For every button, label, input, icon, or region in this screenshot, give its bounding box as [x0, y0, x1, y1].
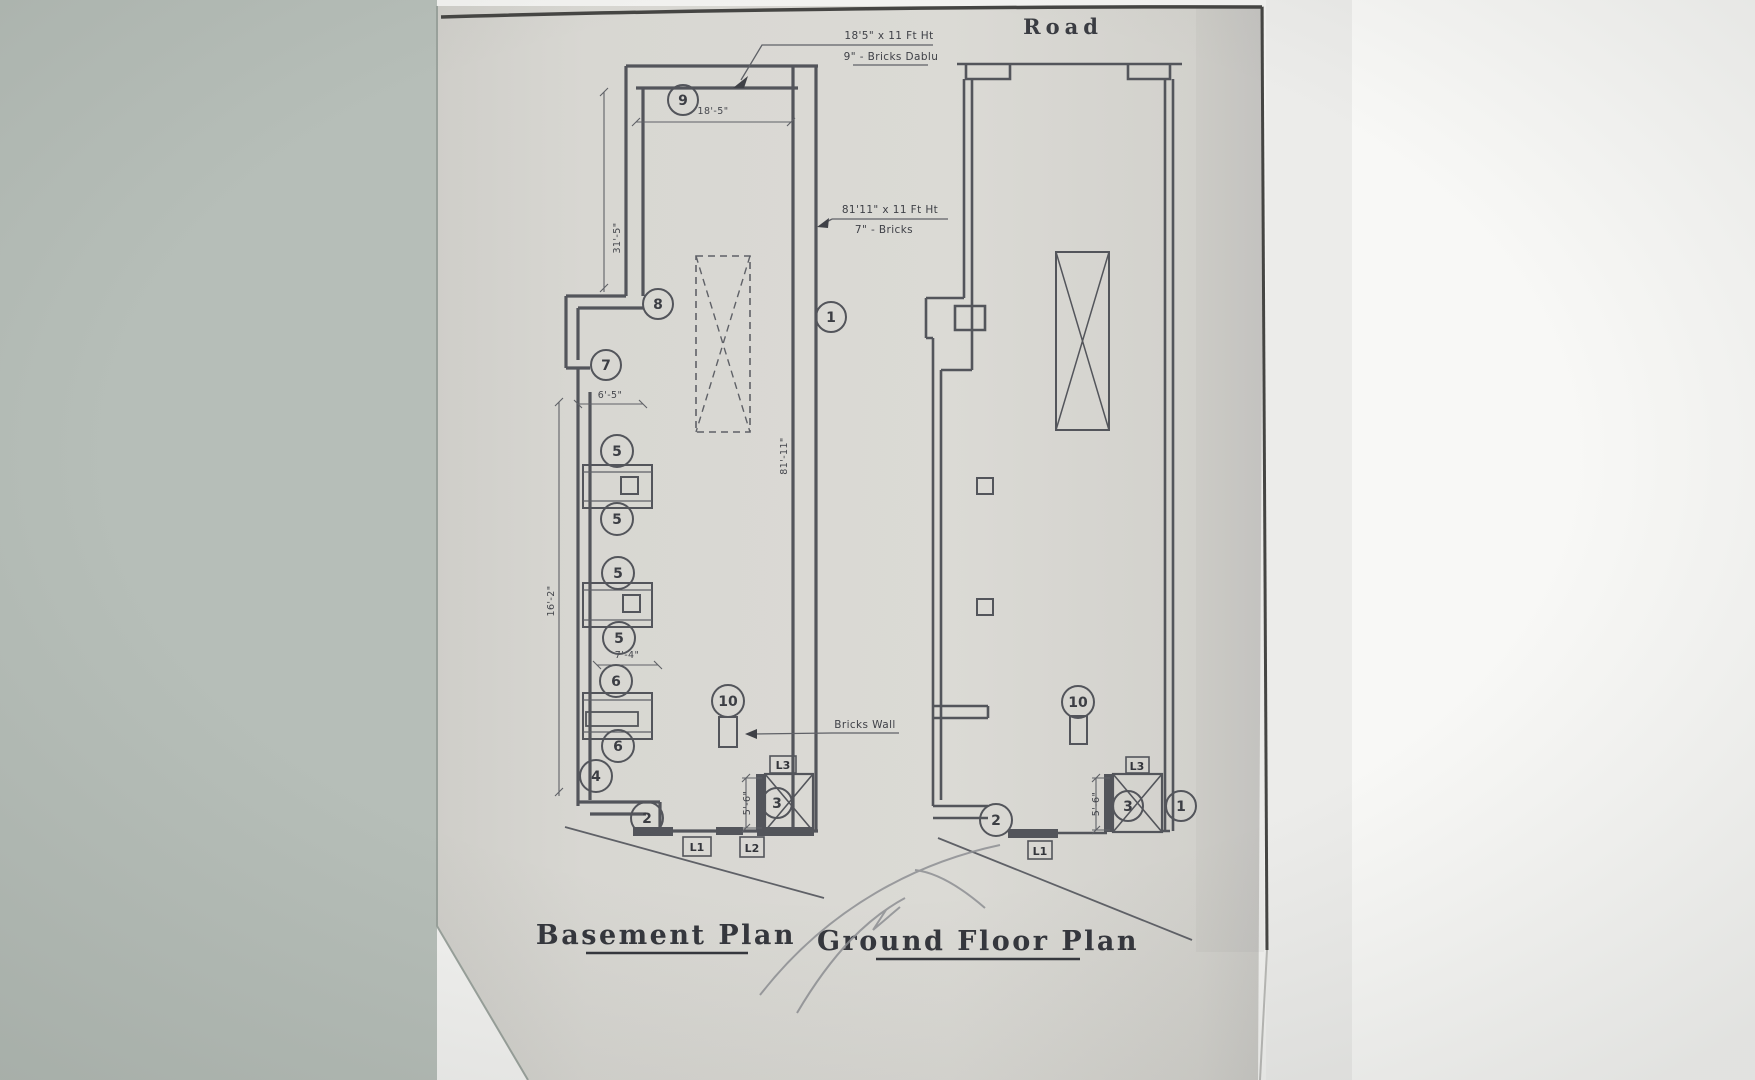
ground-title: Ground Floor Plan: [817, 926, 1139, 957]
basement-sill-bar-2: [716, 827, 743, 835]
callout-6-num: 6: [611, 674, 621, 690]
note-mid-line2: 7" - Bricks: [855, 224, 913, 236]
dim-upper-left-height: 31'-5": [612, 223, 623, 254]
dim-stair-width-ground: 5'-6": [1091, 792, 1102, 817]
callout-5-num: 5: [613, 566, 623, 582]
callout-8-num: 8: [653, 297, 663, 313]
lintel-L3-label: L3: [1130, 760, 1145, 773]
callout-10-num: 10: [1068, 695, 1088, 711]
callout-1-num: 1: [1176, 799, 1186, 815]
note-bricks-text: Bricks Wall: [834, 719, 895, 731]
stair-wall-bar: [756, 774, 765, 831]
dim-right-height: 81'-11": [779, 437, 790, 474]
callout-5-num: 5: [614, 631, 624, 647]
callout-5-num: 5: [612, 444, 622, 460]
note-mid-line1: 81'11" x 11 Ft Ht: [842, 204, 938, 216]
backdrop-right: [1352, 0, 1755, 1080]
callout-6-num: 6: [613, 739, 623, 755]
callout-4-num: 4: [591, 769, 601, 785]
note-top-line1: 18'5" x 11 Ft Ht: [844, 30, 933, 42]
callout-7-num: 7: [601, 358, 611, 374]
lintel-L1-label: L1: [690, 841, 705, 854]
callout-9-num: 9: [678, 93, 688, 109]
lintel-L2-label: L2: [745, 842, 760, 855]
paper-crease: [1196, 6, 1264, 952]
lintel-L1-label: L1: [1033, 845, 1048, 858]
callout-3-num: 3: [772, 796, 782, 812]
stair-wall-bar: [1104, 774, 1113, 832]
basement-title: Basement Plan: [536, 920, 796, 951]
callout-2-num: 2: [991, 813, 1001, 829]
dim-notch-width: 6'-5": [598, 390, 623, 401]
note-top-line2: 9" - Bricks Dablu: [844, 51, 939, 63]
table-surface-left: [0, 0, 437, 1080]
dim-stair-width-basement: 5'-6": [742, 791, 753, 816]
photo-of-floor-plan: 18'-5" 31'-5" 6'-5" 16'-2" 7'-4" 81'-11"…: [0, 0, 1755, 1080]
callout-10-num: 10: [718, 694, 738, 710]
lintel-L3-label: L3: [776, 759, 791, 772]
ground-sill-bar: [1008, 829, 1058, 838]
callout-2-num: 2: [642, 811, 652, 827]
callout-1-num: 1: [826, 310, 836, 326]
callout-5-num: 5: [612, 512, 622, 528]
road-label: Road: [1023, 14, 1103, 39]
callout-3-num: 3: [1123, 799, 1133, 815]
dim-top-width: 18'-5": [698, 106, 729, 117]
dim-mid-left-height: 16'-2": [546, 586, 557, 617]
drawing-photo: 18'-5" 31'-5" 6'-5" 16'-2" 7'-4" 81'-11"…: [0, 0, 1755, 1080]
